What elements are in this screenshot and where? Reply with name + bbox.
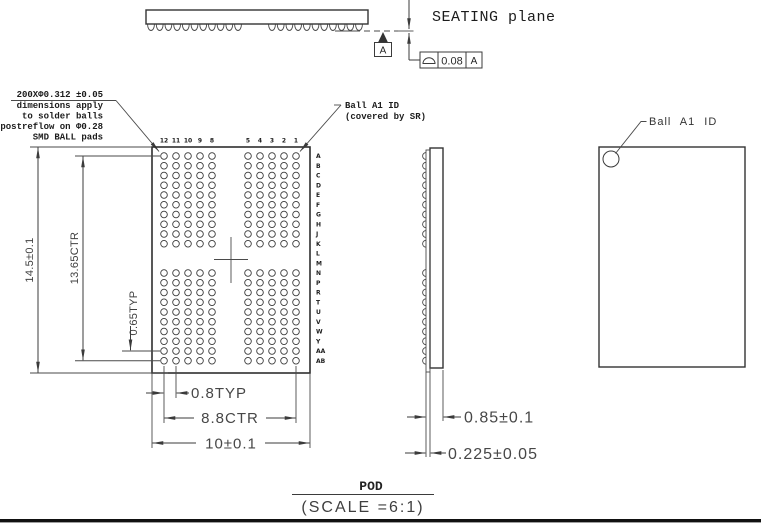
row-label: J (315, 231, 318, 238)
profile-ball-bump (235, 25, 242, 31)
solder-ball (173, 328, 180, 335)
solder-ball (269, 221, 276, 228)
solder-ball (245, 182, 252, 189)
solder-ball (245, 289, 252, 296)
solder-ball (245, 221, 252, 228)
solder-ball (197, 240, 204, 247)
dim-cols-ctr-label: 8.8CTR (201, 410, 259, 427)
solder-ball (245, 279, 252, 286)
solder-ball (209, 162, 216, 169)
solder-ball (293, 279, 300, 286)
package-outline-top (599, 147, 745, 367)
row-label: E (316, 192, 320, 199)
column-label: 3 (270, 138, 274, 145)
dim-substrate-thickness: 0.225±0.05 (405, 446, 538, 463)
solder-ball (257, 231, 264, 238)
solder-ball (185, 221, 192, 228)
note-line-1: 200XΦ0.312 ±0.05 (17, 90, 103, 100)
row-label: P (316, 280, 321, 287)
solder-ball (293, 270, 300, 277)
solder-ball (173, 172, 180, 179)
dim-row-pitch: 0.65TYP (128, 291, 140, 351)
solder-ball (173, 348, 180, 355)
side-ball-bump (423, 211, 426, 218)
dim-row-pitch-label: 0.65TYP (128, 291, 140, 336)
solder-ball (269, 231, 276, 238)
solder-ball (269, 279, 276, 286)
solder-ball (209, 318, 216, 325)
solder-ball (293, 299, 300, 306)
row-label: AB (316, 358, 326, 365)
solder-ball (209, 348, 216, 355)
solder-ball (269, 299, 276, 306)
side-ball-bump (423, 270, 426, 277)
row-label: L (316, 251, 320, 258)
solder-ball (281, 328, 288, 335)
solder-ball (257, 240, 264, 247)
surface-profile-icon (423, 58, 435, 64)
solder-ball (209, 309, 216, 316)
solder-ball (209, 270, 216, 277)
row-label: AA (316, 348, 326, 355)
solder-ball (245, 192, 252, 199)
solder-ball (161, 299, 168, 306)
solder-ball (209, 240, 216, 247)
row-label: V (316, 319, 321, 326)
profile-ball-bump (303, 25, 310, 31)
solder-ball (185, 162, 192, 169)
column-labels: 1211109854321 (160, 138, 298, 145)
solder-ball (197, 338, 204, 345)
ball-a1-leader-line (300, 105, 341, 152)
dim-rows-ctr: 13.65CTR (69, 157, 83, 361)
side-ball-bump (423, 162, 426, 169)
solder-ball (173, 309, 180, 316)
profile-ball-bump (330, 25, 337, 31)
seating-plane-label: SEATING plane (432, 9, 556, 26)
solder-ball (173, 231, 180, 238)
solder-ball (281, 299, 288, 306)
row-label: W (316, 329, 323, 336)
solder-ball (257, 192, 264, 199)
solder-ball (209, 182, 216, 189)
solder-ball (245, 211, 252, 218)
solder-ball (197, 299, 204, 306)
solder-ball (293, 328, 300, 335)
ball-a1-note: Ball A1 ID (covered by SR) (300, 101, 426, 152)
solder-ball (197, 182, 204, 189)
seating-plane-tolerance-zone (409, 0, 420, 60)
solder-ball (161, 192, 168, 199)
solder-ball (197, 348, 204, 355)
profile-ball-bump (156, 25, 163, 31)
solder-ball (209, 279, 216, 286)
solder-ball (257, 328, 264, 335)
solder-ball (185, 328, 192, 335)
column-label: 2 (282, 138, 286, 145)
profile-ball-bump (295, 25, 302, 31)
solder-ball (257, 270, 264, 277)
solder-ball (269, 172, 276, 179)
solder-ball (257, 201, 264, 208)
solder-ball (293, 201, 300, 208)
profile-ball-bump (356, 25, 363, 31)
solder-ball (245, 162, 252, 169)
solder-ball (257, 153, 264, 160)
solder-ball (293, 240, 300, 247)
solder-ball (185, 289, 192, 296)
solder-ball (173, 201, 180, 208)
profile-ball-bump (321, 25, 328, 31)
solder-ball (281, 357, 288, 364)
solder-ball (161, 289, 168, 296)
solder-ball (245, 318, 252, 325)
package-body-profile (146, 10, 368, 24)
solder-ball (197, 201, 204, 208)
solder-ball (269, 192, 276, 199)
row-label: C (316, 173, 321, 180)
column-label: 10 (184, 138, 192, 145)
solder-ball (293, 162, 300, 169)
solder-ball (209, 201, 216, 208)
column-label: 11 (172, 138, 180, 145)
solder-ball (173, 357, 180, 364)
solder-ball (173, 221, 180, 228)
row-label: H (316, 221, 321, 228)
solder-ball (281, 153, 288, 160)
dim-width-label: 10±0.1 (205, 436, 257, 453)
solder-ball (257, 182, 264, 189)
profile-ball-bump (286, 25, 293, 31)
solder-ball (161, 231, 168, 238)
solder-ball (197, 211, 204, 218)
solder-ball (293, 211, 300, 218)
profile-ball-bump (269, 25, 276, 31)
note-line-3: to solder balls (22, 112, 103, 122)
solder-ball (173, 153, 180, 160)
solder-ball (173, 279, 180, 286)
column-label: 4 (258, 138, 262, 145)
side-ball-bump (423, 192, 426, 199)
side-ball-bump (423, 172, 426, 179)
column-label: 1 (294, 138, 298, 145)
solder-ball (245, 338, 252, 345)
solder-ball (245, 201, 252, 208)
profile-ball-bump (174, 25, 181, 31)
solder-ball (185, 338, 192, 345)
solder-ball (269, 348, 276, 355)
dim-body-thickness-label: 0.85±0.1 (464, 410, 534, 427)
solder-ball (281, 240, 288, 247)
view-title-block: POD (SCALE =6:1) (292, 479, 434, 516)
solder-ball (293, 357, 300, 364)
solder-ball (173, 338, 180, 345)
solder-ball (281, 348, 288, 355)
solder-ball (161, 172, 168, 179)
view-scale: (SCALE =6:1) (301, 499, 424, 516)
ball-a1-id-label: Ball A1 ID (649, 116, 717, 128)
solder-ball (281, 338, 288, 345)
solder-ball (281, 318, 288, 325)
solder-ball (197, 231, 204, 238)
solder-ball (209, 338, 216, 345)
profile-ball-bump (338, 25, 345, 31)
datum-triangle-icon (378, 32, 388, 43)
side-view: 0.85±0.1 0.225±0.05 (405, 148, 538, 463)
side-ball-bump (423, 318, 426, 325)
dim-substrate-thickness-label: 0.225±0.05 (448, 446, 538, 463)
solder-ball (173, 318, 180, 325)
solder-ball (269, 289, 276, 296)
solder-ball (185, 211, 192, 218)
solder-ball (269, 318, 276, 325)
solder-ball (161, 211, 168, 218)
side-ball-bump (423, 221, 426, 228)
solder-ball (173, 240, 180, 247)
solder-ball (185, 318, 192, 325)
solder-ball (197, 309, 204, 316)
ball-grid (161, 153, 300, 364)
solder-ball (281, 270, 288, 277)
solder-ball (209, 153, 216, 160)
column-label: 12 (160, 138, 168, 145)
solder-ball (161, 162, 168, 169)
solder-ball (281, 201, 288, 208)
solder-ball (293, 309, 300, 316)
solder-ball (209, 231, 216, 238)
solder-ball (173, 211, 180, 218)
profile-ball-bump (191, 25, 198, 31)
side-ball-bump (423, 338, 426, 345)
solder-ball (257, 348, 264, 355)
solder-ball (281, 309, 288, 316)
solder-ball (281, 172, 288, 179)
solder-ball (269, 338, 276, 345)
solder-ball (209, 357, 216, 364)
side-ball-bump (423, 279, 426, 286)
dim-col-pitch-label: 0.8TYP (191, 385, 247, 402)
solder-ball (269, 201, 276, 208)
side-solder-balls (423, 153, 426, 365)
solder-ball (257, 338, 264, 345)
solder-ball (185, 270, 192, 277)
solder-ball (269, 240, 276, 247)
solder-ball (281, 231, 288, 238)
view-name: POD (359, 479, 383, 494)
solder-ball (269, 309, 276, 316)
fcf-tolerance: 0.08 (441, 55, 462, 67)
solder-ball (161, 328, 168, 335)
solder-ball (257, 162, 264, 169)
column-label: 5 (246, 138, 250, 145)
solder-ball (245, 172, 252, 179)
solder-ball (185, 348, 192, 355)
solder-ball (209, 211, 216, 218)
side-ball-bump (423, 289, 426, 296)
extension-lines (30, 147, 310, 448)
solder-ball-note: 200XΦ0.312 ±0.05 dimensions apply to sol… (0, 90, 159, 152)
row-label: N (316, 270, 321, 277)
solder-ball (185, 172, 192, 179)
row-label: U (316, 309, 321, 316)
solder-ball (281, 211, 288, 218)
dim-rows-ctr-label: 13.65CTR (69, 232, 81, 285)
profile-ball-bump (182, 25, 189, 31)
ball-a1-note-line2: (covered by SR) (345, 112, 426, 122)
solder-ball (197, 328, 204, 335)
solder-ball (197, 221, 204, 228)
profile-ball-bump (277, 25, 284, 31)
solder-ball (161, 318, 168, 325)
solder-ball (245, 270, 252, 277)
solder-ball (245, 309, 252, 316)
solder-ball (245, 231, 252, 238)
solder-ball (161, 221, 168, 228)
solder-ball (185, 192, 192, 199)
solder-ball (185, 299, 192, 306)
solder-ball (161, 357, 168, 364)
column-label: 9 (198, 138, 202, 145)
profile-ball-bump (217, 25, 224, 31)
solder-ball (161, 240, 168, 247)
row-label: D (316, 182, 321, 189)
solder-ball (209, 289, 216, 296)
solder-ball (185, 240, 192, 247)
solder-ball (245, 348, 252, 355)
solder-ball (185, 153, 192, 160)
solder-ball (197, 192, 204, 199)
fcf-datum-ref: A (471, 56, 478, 67)
dim-height-label: 14.5±0.1 (24, 237, 36, 282)
solder-ball (293, 231, 300, 238)
mold-body-outline (430, 148, 443, 368)
solder-ball (293, 182, 300, 189)
solder-ball (257, 357, 264, 364)
solder-ball (293, 192, 300, 199)
solder-ball (293, 153, 300, 160)
pod-drawing: A 0.08 A SEATING plane 200XΦ0.312 ±0.05 … (0, 0, 761, 528)
dim-col-pitch: 0.8TYP (146, 385, 247, 402)
solder-ball (269, 270, 276, 277)
solder-ball (197, 318, 204, 325)
solder-ball (173, 192, 180, 199)
solder-ball (161, 182, 168, 189)
row-label: R (316, 290, 321, 297)
solder-ball (257, 299, 264, 306)
solder-ball (293, 338, 300, 345)
solder-ball (161, 153, 168, 160)
side-profile-view: A 0.08 A SEATING plane (146, 0, 556, 68)
side-extension-lines (426, 370, 443, 457)
ball-a1-note-line1: Ball A1 ID (345, 101, 400, 111)
profile-ball-bump (165, 25, 172, 31)
solder-ball (245, 299, 252, 306)
ball-a1-id-leader-line (616, 122, 647, 154)
solder-ball (269, 162, 276, 169)
solder-ball (257, 211, 264, 218)
solder-ball (173, 289, 180, 296)
row-label: K (316, 241, 321, 248)
side-ball-bump (423, 309, 426, 316)
solder-ball (161, 279, 168, 286)
solder-ball (257, 172, 264, 179)
solder-ball (269, 211, 276, 218)
row-label: A (316, 153, 321, 160)
profile-ball-bump (312, 25, 319, 31)
top-view: Ball A1 ID (599, 116, 745, 367)
solder-ball (197, 153, 204, 160)
solder-ball (245, 328, 252, 335)
solder-ball (197, 279, 204, 286)
bottom-view: 1211109854321 ABCDEFGHJKLMNPRTUVWYAAAB B… (24, 101, 426, 453)
profile-solder-balls (148, 25, 363, 31)
solder-ball (161, 201, 168, 208)
note-line-5: SMD BALL pads (33, 133, 103, 143)
solder-ball (281, 182, 288, 189)
solder-ball (257, 221, 264, 228)
row-label: M (316, 260, 322, 267)
drawing-sheet: A 0.08 A SEATING plane 200XΦ0.312 ±0.05 … (0, 0, 761, 528)
profile-ball-bump (200, 25, 207, 31)
solder-ball (173, 162, 180, 169)
solder-ball (245, 357, 252, 364)
solder-ball (281, 279, 288, 286)
solder-ball (245, 153, 252, 160)
solder-ball (197, 162, 204, 169)
solder-ball (281, 192, 288, 199)
solder-ball (209, 328, 216, 335)
solder-ball (269, 182, 276, 189)
solder-ball (257, 318, 264, 325)
solder-ball (173, 182, 180, 189)
solder-ball (257, 289, 264, 296)
note-line-2: dimensions apply (17, 101, 104, 111)
solder-ball (173, 270, 180, 277)
ball-a1-id-mark (603, 151, 619, 167)
solder-ball (269, 328, 276, 335)
dim-height: 14.5±0.1 (24, 148, 38, 373)
solder-ball (281, 162, 288, 169)
profile-ball-bump (226, 25, 233, 31)
solder-ball (293, 348, 300, 355)
row-label: Y (315, 338, 321, 345)
profile-ball-bump (209, 25, 216, 31)
solder-ball (281, 221, 288, 228)
side-ball-bump (423, 357, 426, 364)
profile-ball-bump (148, 25, 155, 31)
solder-ball (161, 309, 168, 316)
column-label: 8 (210, 138, 214, 145)
solder-ball (209, 221, 216, 228)
solder-ball (185, 309, 192, 316)
side-ball-bump (423, 328, 426, 335)
solder-ball (209, 172, 216, 179)
solder-ball (293, 318, 300, 325)
solder-ball (269, 357, 276, 364)
dim-cols-ctr: 8.8CTR (165, 410, 296, 427)
center-mark-icon (214, 237, 248, 283)
datum-flag-label: A (380, 46, 387, 57)
solder-ball (161, 338, 168, 345)
row-label: G (316, 212, 321, 219)
sheet-border-line (0, 519, 761, 522)
solder-ball (173, 299, 180, 306)
datum-flag-a: A (375, 32, 392, 57)
solder-ball (197, 172, 204, 179)
profile-ball-bump (347, 25, 354, 31)
solder-ball (197, 357, 204, 364)
solder-ball (185, 357, 192, 364)
